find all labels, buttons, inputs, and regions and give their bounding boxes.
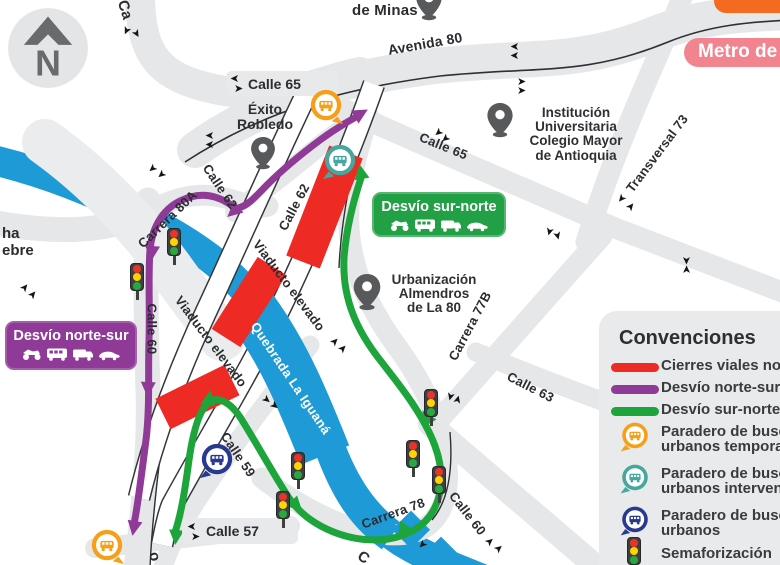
vehicle-icons [19, 345, 123, 361]
street-calle-57: Calle 57 [206, 523, 259, 539]
legend-item-sur-norte: Desvío sur-norte [661, 402, 780, 417]
bus-stop-urbano-icon [619, 505, 651, 537]
bus-stop-intervenido-icon [619, 463, 651, 495]
traffic-light-icon [432, 466, 446, 503]
legend-title: Convenciones [619, 327, 756, 350]
landmark-urbanizacion-line2: Almendros [384, 287, 484, 301]
landmark-institucion-line2: Universitaria [520, 120, 632, 134]
legend-item-paradero-temporal-1: Paradero de buses [661, 424, 780, 439]
metro-badge: Metro de [684, 38, 780, 67]
north-compass: N [6, 6, 90, 90]
landmark-urbanizacion-line3: de La 80 [384, 301, 484, 315]
traffic-light-icon [130, 263, 144, 300]
landmark-exito-line1: Éxito [224, 102, 306, 117]
legend-item-paradero-intervenido-2: urbanos intervenidos [661, 481, 780, 496]
landmark-exito-robledo: Éxito Robledo [224, 102, 306, 131]
traffic-light-icon [406, 440, 420, 477]
traffic-light-icon [627, 537, 641, 565]
legend-item-cierres: Cierres viales nocturnos [661, 358, 780, 373]
badge-desvio-norte-sur: Desvío norte-sur [5, 321, 137, 370]
orange-banner-corner [714, 0, 780, 13]
landmark-urbanizacion: Urbanización Almendros de La 80 [384, 273, 484, 316]
legend-red-line-swatch [611, 363, 659, 372]
direction-arrow-icon: ➤ [510, 50, 519, 61]
traffic-light-icon [291, 452, 305, 489]
bus-stop-temporal-icon [619, 421, 651, 453]
map-canvas: N Metro de Avenida 80 Calle 65 Transvers… [0, 0, 780, 565]
legend-item-paradero-temporal-2: urbanos temporales [661, 439, 780, 454]
badge-sur-norte-label: Desvío sur-norte [374, 199, 504, 215]
compass-letter: N [35, 43, 61, 83]
street-de-minas: de Minas [352, 2, 418, 19]
bus-stop-intervenido-icon [321, 143, 359, 181]
landmark-exito-line2: Robledo [224, 117, 306, 132]
legend-green-line-swatch [611, 407, 659, 416]
direction-arrow-icon: ➤ [191, 531, 200, 542]
legend-item-semaforizacion: Semaforización [661, 546, 772, 561]
map-pin-icon [486, 103, 514, 139]
traffic-light-icon [276, 491, 290, 528]
legend-item-paradero-urbano-1: Paradero de buses [661, 508, 780, 523]
direction-arrow-icon: ➤ [205, 139, 214, 150]
badge-norte-sur-label: Desvío norte-sur [7, 328, 135, 344]
badge-desvio-sur-norte: Desvío sur-norte [372, 192, 506, 237]
vehicle-icons [387, 216, 491, 232]
map-pin-icon [352, 274, 382, 312]
direction-arrow-icon: ➤ [681, 265, 692, 274]
legend-panel: Convenciones Cierres viales nocturnos De… [599, 311, 780, 565]
bus-stop-temporal-icon [307, 88, 345, 126]
bus-stop-urbano-icon [198, 442, 236, 480]
legend-purple-line-swatch [611, 385, 659, 394]
legend-item-paradero-urbano-2: urbanos [661, 523, 720, 538]
traffic-light-icon [424, 389, 438, 426]
legend-item-norte-sur: Desvío norte-sur [661, 380, 780, 395]
direction-arrow-icon: ➤ [517, 85, 526, 96]
street-fragment-ha: ha [2, 225, 20, 242]
street-fragment-ebre: ebre [2, 242, 34, 259]
map-pin-icon [415, 0, 443, 22]
direction-arrow-icon: ➤ [234, 83, 243, 94]
direction-arrow-icon: ➤ [681, 256, 692, 265]
landmark-institucion: Institución Universitaria Colegio Mayor … [520, 106, 632, 163]
street-calle-60-left: Calle 60 [145, 304, 160, 355]
bus-stop-temporal-icon [88, 528, 126, 565]
landmark-institucion-line4: de Antioquia [520, 149, 632, 163]
street-calle-65-top: Calle 65 [248, 76, 301, 92]
legend-item-paradero-intervenido-1: Paradero de buses [661, 466, 780, 481]
map-pin-icon [250, 137, 276, 171]
landmark-urbanizacion-line1: Urbanización [384, 273, 484, 287]
landmark-institucion-line3: Colegio Mayor [520, 134, 632, 148]
traffic-light-icon [167, 228, 181, 265]
landmark-institucion-line1: Institución [520, 106, 632, 120]
